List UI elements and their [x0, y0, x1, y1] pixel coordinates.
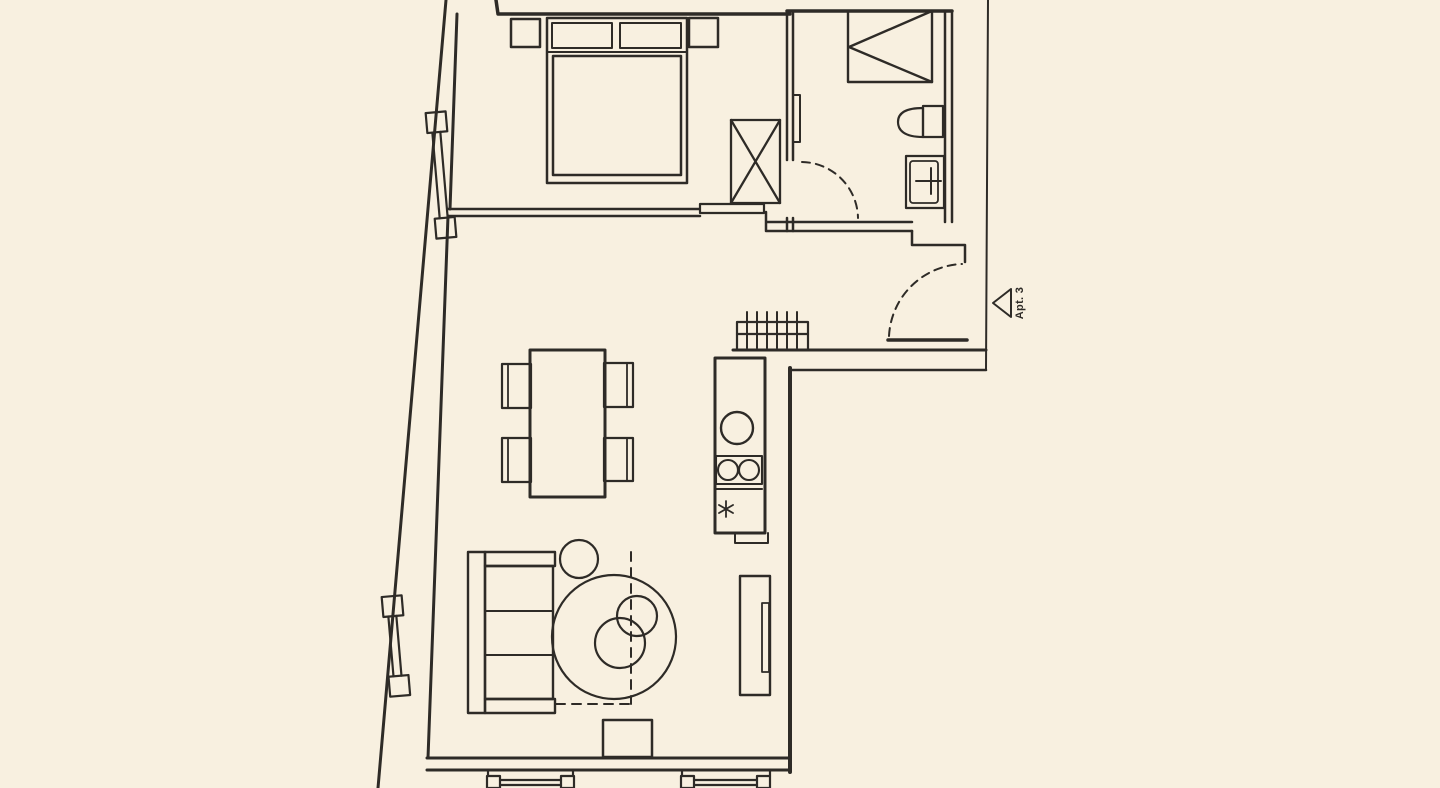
entrance-label: Apt. 3 [1014, 287, 1026, 319]
floor-plan-drawing: Apt. 3 [0, 0, 1440, 788]
floor-plan-page: Apt. 3 [0, 0, 1440, 788]
paper-background [0, 0, 1440, 788]
bedroom-sliding-door [700, 204, 764, 213]
stool [560, 540, 598, 578]
